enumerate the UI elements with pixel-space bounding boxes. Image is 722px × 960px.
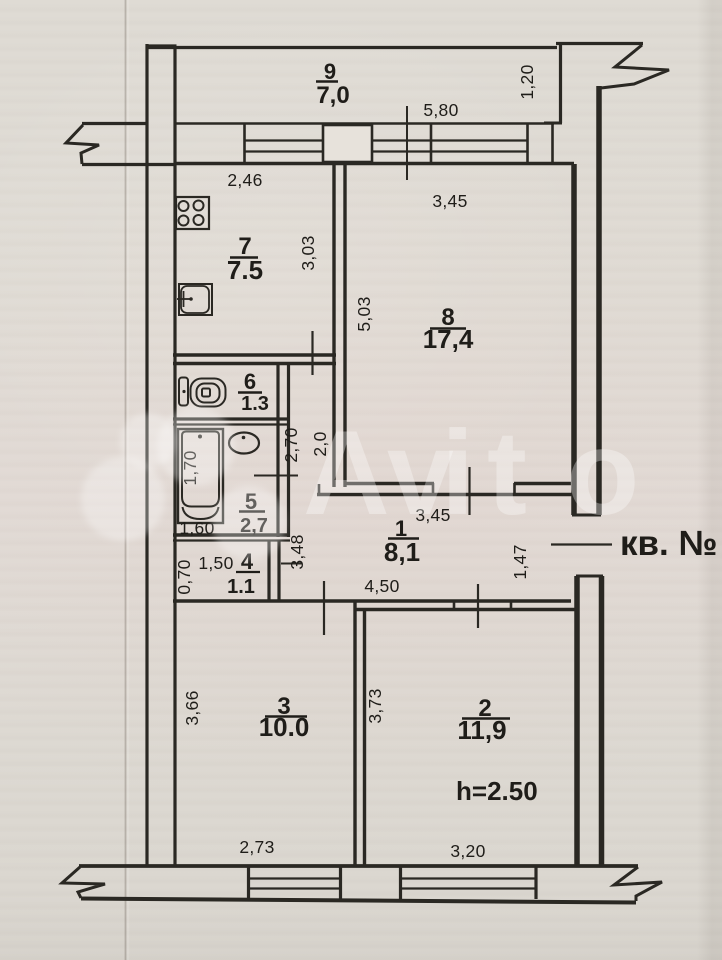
svg-text:1,20: 1,20 bbox=[517, 64, 537, 99]
svg-text:3,03: 3,03 bbox=[298, 235, 318, 270]
svg-text:h=2.50: h=2.50 bbox=[456, 776, 538, 806]
svg-text:1,47: 1,47 bbox=[510, 544, 530, 579]
svg-text:7,0: 7,0 bbox=[316, 82, 349, 109]
svg-text:11,9: 11,9 bbox=[457, 715, 506, 745]
svg-text:8,1: 8,1 bbox=[384, 537, 420, 567]
svg-text:3,45: 3,45 bbox=[432, 191, 467, 211]
svg-text:1,50: 1,50 bbox=[198, 553, 233, 573]
svg-text:6: 6 bbox=[244, 369, 256, 394]
svg-text:1,60: 1,60 bbox=[179, 518, 214, 538]
svg-text:1.3: 1.3 bbox=[241, 393, 269, 415]
svg-text:2,46: 2,46 bbox=[227, 170, 262, 190]
svg-text:1.1: 1.1 bbox=[227, 576, 255, 598]
svg-text:3,66: 3,66 bbox=[182, 690, 202, 725]
svg-text:17,4: 17,4 bbox=[423, 324, 474, 354]
svg-text:3,73: 3,73 bbox=[365, 688, 385, 723]
svg-text:5,80: 5,80 bbox=[423, 100, 458, 120]
svg-text:5,03: 5,03 bbox=[354, 296, 374, 331]
svg-text:9: 9 bbox=[324, 59, 336, 84]
svg-text:0,70: 0,70 bbox=[174, 559, 194, 594]
svg-text:Avito: Avito bbox=[303, 406, 639, 540]
svg-text:2,73: 2,73 bbox=[239, 837, 274, 857]
svg-text:3,20: 3,20 bbox=[450, 841, 485, 861]
svg-text:2,70: 2,70 bbox=[281, 427, 301, 462]
svg-text:7.5: 7.5 bbox=[227, 255, 263, 285]
svg-text:10.0: 10.0 bbox=[259, 712, 310, 742]
svg-text:4,50: 4,50 bbox=[364, 576, 399, 596]
